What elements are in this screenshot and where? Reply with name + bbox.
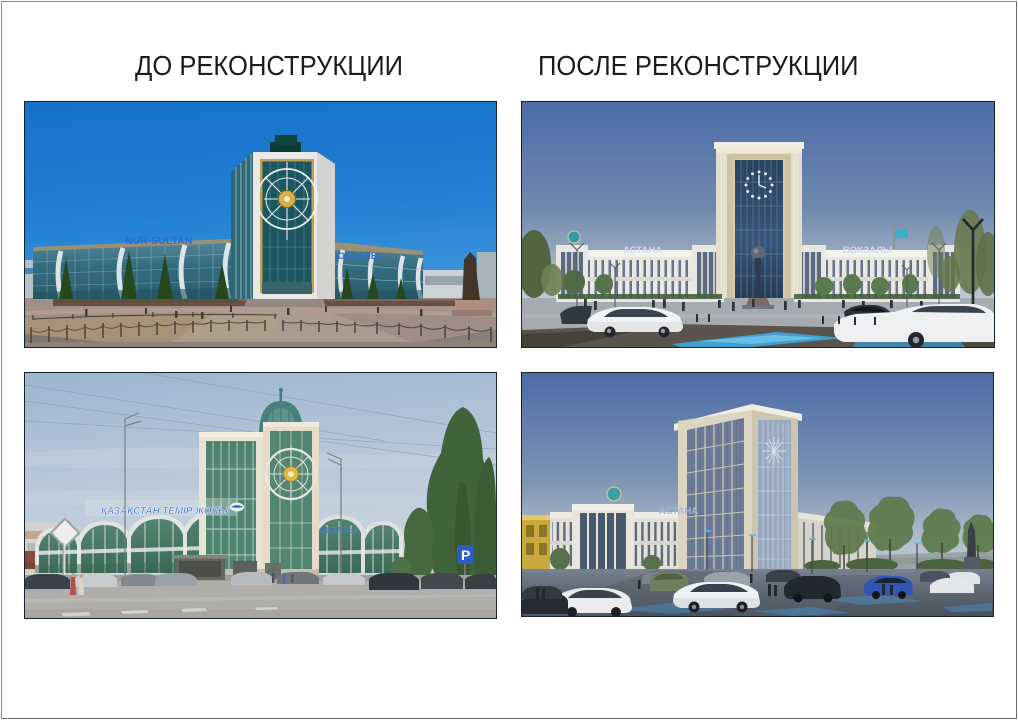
svg-text:АСТАНА: АСТАНА [623,245,662,256]
svg-text:ВОКЗАЛЫ: ВОКЗАЛЫ [313,525,357,535]
svg-text:ВОКЗАЛЫ: ВОКЗАЛЫ [843,245,892,256]
svg-text:ҚАЗАҚСТАН ТЕМІР ЖОЛЫ: ҚАЗАҚСТАН ТЕМІР ЖОЛЫ [101,506,228,517]
svg-text:АСТАНА: АСТАНА [659,506,698,517]
svg-text:ВОКЗАЛЫ: ВОКЗАЛЫ [331,251,380,262]
svg-text:P: P [461,547,470,563]
svg-text:NUR-SULTAN: NUR-SULTAN [125,235,192,247]
